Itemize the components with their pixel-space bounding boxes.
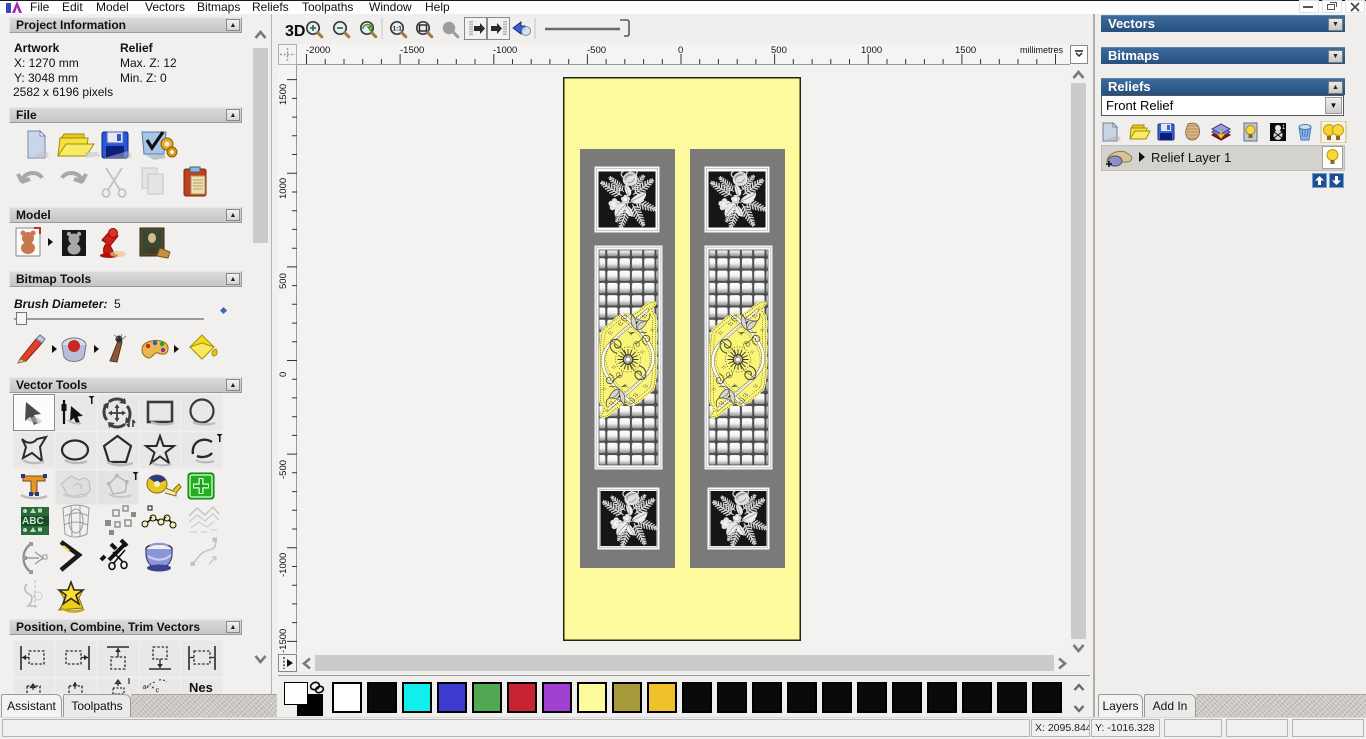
svg-text:ABC: ABC: [22, 516, 44, 527]
svg-text:3D: 3D: [285, 23, 305, 40]
svg-text:0: 0: [278, 372, 289, 377]
svg-text:1:1: 1:1: [393, 26, 403, 33]
svg-text:1500: 1500: [278, 84, 289, 105]
svg-text:500: 500: [771, 45, 787, 56]
svg-text:-2000: -2000: [306, 45, 330, 56]
svg-text:-1000: -1000: [493, 45, 517, 56]
svg-text:-500: -500: [278, 460, 289, 479]
svg-text:-500: -500: [587, 45, 606, 56]
svg-text:500: 500: [278, 273, 289, 289]
svg-text:-1000: -1000: [278, 553, 289, 577]
svg-text:1500: 1500: [955, 45, 976, 56]
svg-text:Nes: Nes: [189, 680, 213, 694]
svg-text:millimetres: millimetres: [1020, 45, 1064, 55]
svg-text:1000: 1000: [278, 178, 289, 199]
svg-text:-1500: -1500: [278, 629, 289, 653]
svg-text:-1500: -1500: [400, 45, 424, 56]
svg-text:0: 0: [678, 45, 683, 56]
svg-text:1000: 1000: [861, 45, 882, 56]
